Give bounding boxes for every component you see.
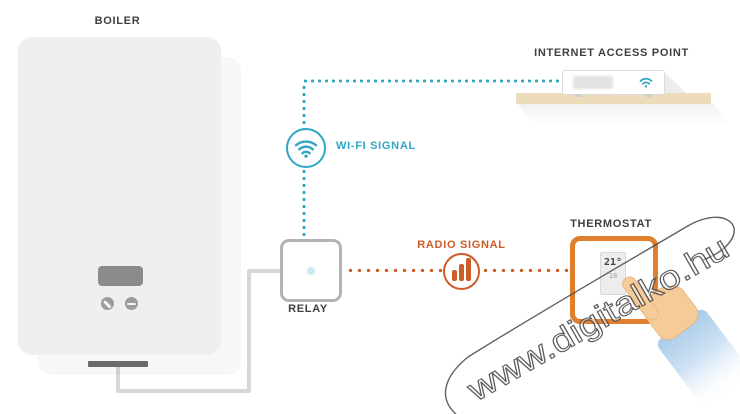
boiler-bottom-vent <box>88 361 148 367</box>
wifi-signal-label: WI-FI SIGNAL <box>336 140 416 152</box>
shelf-shadow <box>517 103 735 131</box>
diagram-canvas: BOILER WI-FI SIGNAL RELAY RADIO SIGNAL I… <box>0 0 740 414</box>
boiler-knob-left <box>101 297 114 310</box>
boiler-knob-right <box>125 297 138 310</box>
radio-signal-badge <box>443 253 480 290</box>
router-wifi-icon <box>639 77 653 88</box>
wifi-dotted-line-horizontal <box>302 79 560 83</box>
wifi-signal-badge <box>286 128 326 168</box>
wifi-icon <box>294 138 318 158</box>
thermostat-label: THERMOSTAT <box>550 218 672 230</box>
pointing-hand <box>555 248 740 414</box>
relay-label: RELAY <box>268 303 348 315</box>
router-logo <box>573 76 613 89</box>
router-shadow <box>664 72 686 93</box>
radio-signal-label: RADIO SIGNAL <box>404 239 519 251</box>
access-point-device <box>562 70 665 95</box>
access-point-label: INTERNET ACCESS POINT <box>520 47 703 59</box>
boiler-label: BOILER <box>60 15 175 27</box>
relay-box <box>280 239 342 302</box>
radio-bars-icon <box>452 258 471 281</box>
boiler-body <box>18 37 221 355</box>
boiler-display <box>98 266 143 286</box>
